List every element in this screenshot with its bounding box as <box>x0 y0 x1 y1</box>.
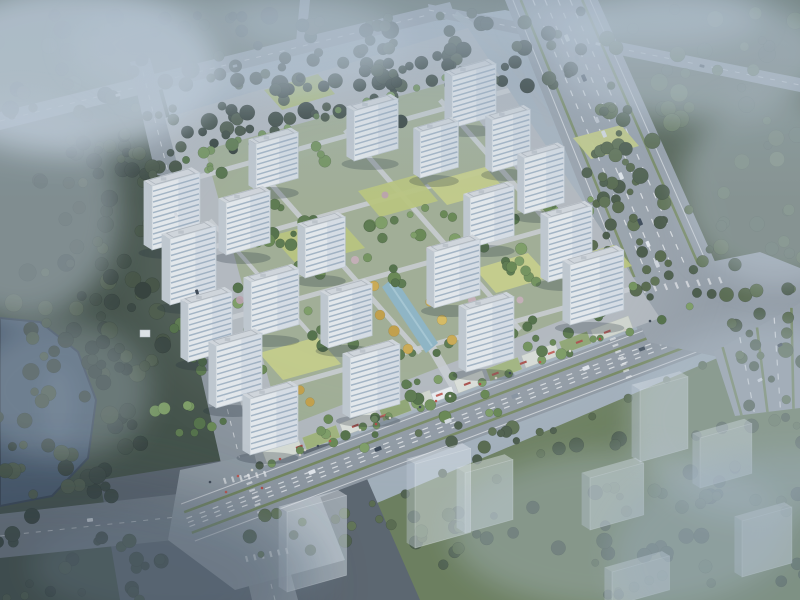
rendering-canvas <box>0 0 800 600</box>
color-grade-overlay <box>0 0 800 600</box>
aerial-rendering-image <box>0 0 800 600</box>
